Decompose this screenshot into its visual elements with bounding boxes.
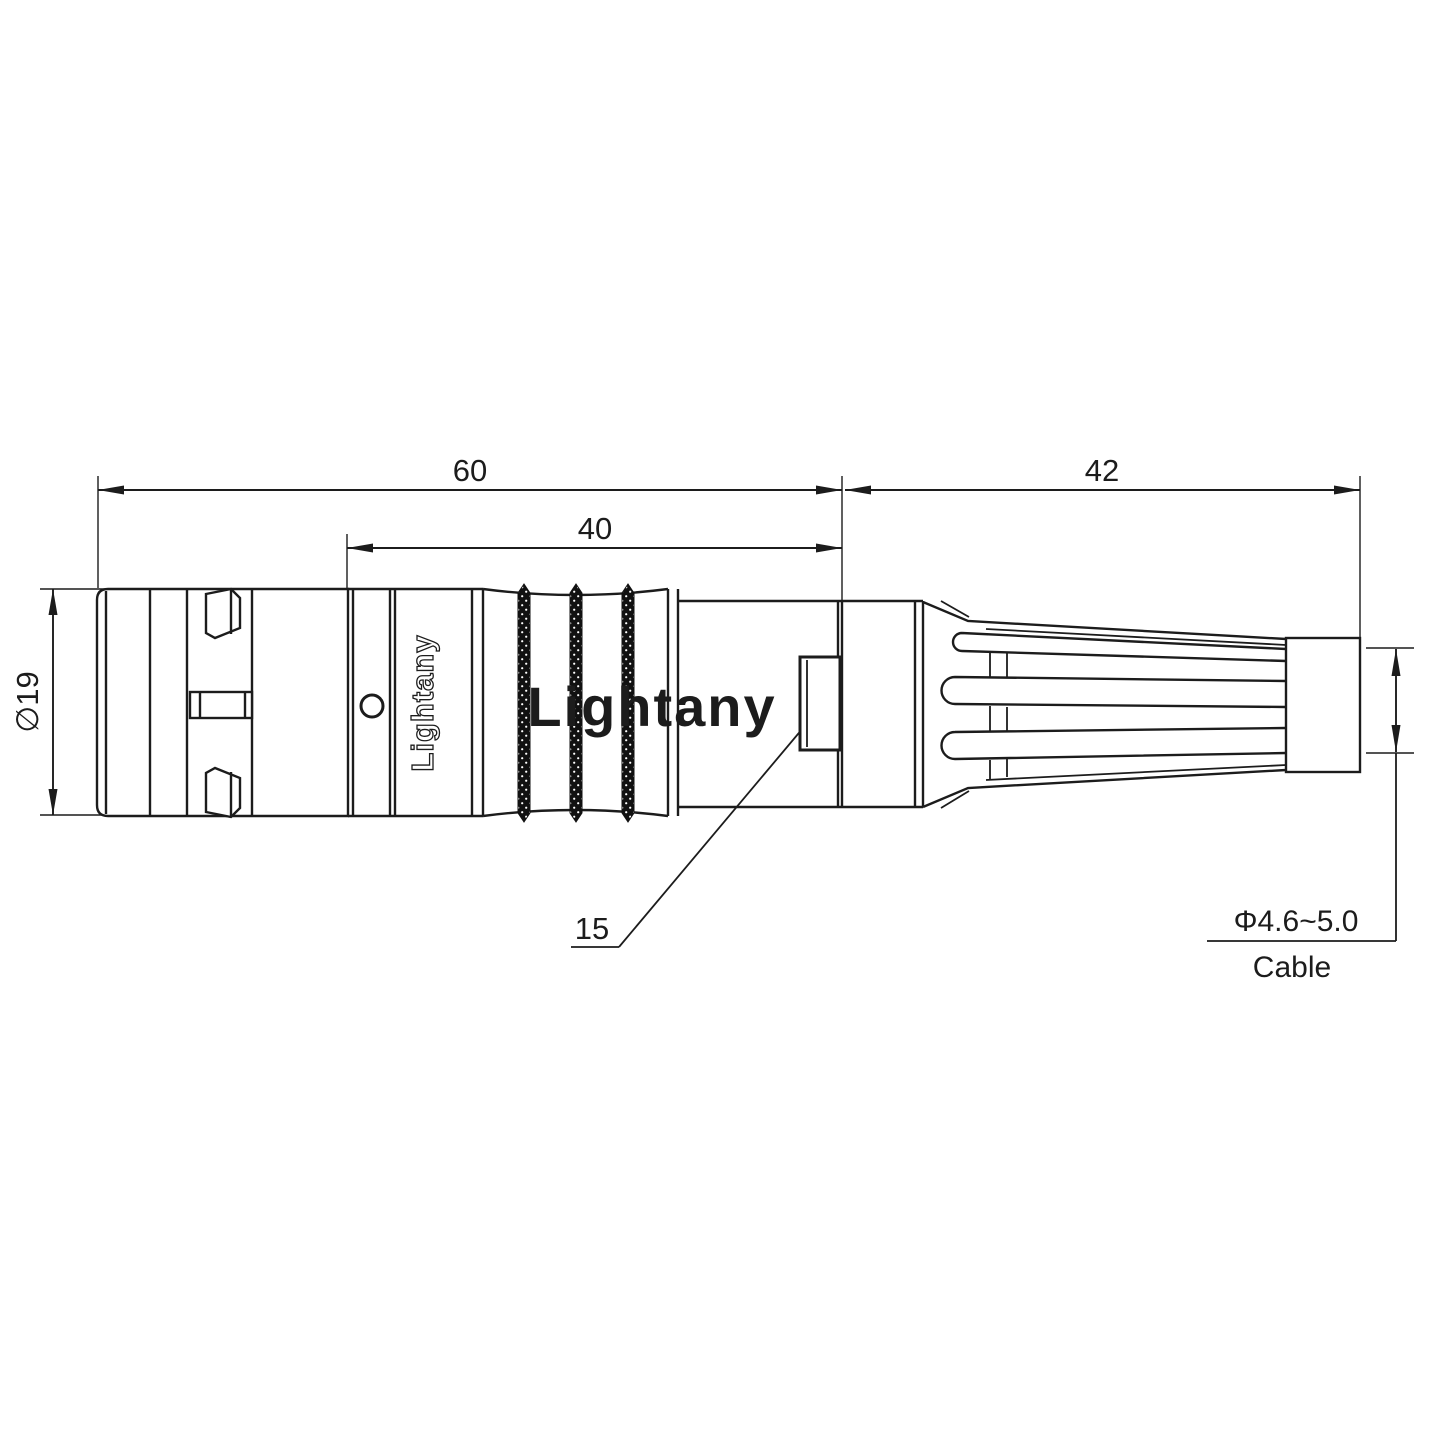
logo-text: Lightany (405, 634, 440, 771)
dimension-overall-length: 60 (98, 453, 842, 600)
dim-label-cable-range: Φ4.6~5.0 (1234, 905, 1359, 938)
front-shell (97, 589, 348, 817)
dim-label-42: 42 (1085, 453, 1119, 488)
cable-end-cap (1286, 638, 1360, 772)
key-tab-bottom (206, 768, 240, 817)
mid-barrel: Lightany (348, 589, 483, 816)
vent-hole (361, 695, 383, 717)
drawing-page: 60 42 40 ∅19 15 (0, 0, 1440, 1440)
key-tab-top (206, 589, 240, 638)
watermark-text: Lightany (527, 675, 776, 738)
latch-window (800, 657, 840, 750)
dim-label-dia19: ∅19 (10, 671, 45, 733)
technical-drawing: 60 42 40 ∅19 15 (0, 0, 1440, 1440)
dim-label-15: 15 (575, 911, 609, 946)
strain-relief-boot (923, 601, 1360, 808)
key-slot (190, 692, 252, 718)
leader-latch-15: 15 (571, 704, 823, 947)
dim-label-60: 60 (453, 453, 487, 488)
cable-label: Cable (1253, 951, 1331, 984)
dim-label-40: 40 (578, 511, 612, 546)
dimension-front-length: 40 (347, 511, 842, 588)
